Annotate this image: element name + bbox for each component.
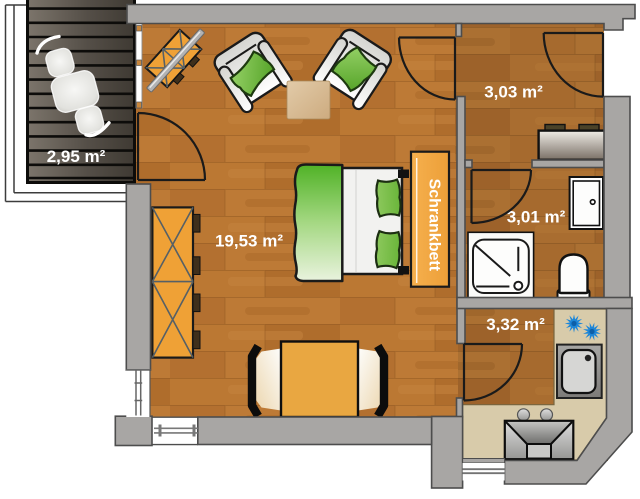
svg-text:2,95 m²: 2,95 m² [47, 147, 106, 166]
svg-text:3,03 m²: 3,03 m² [484, 83, 543, 102]
svg-text:19,53 m²: 19,53 m² [215, 232, 283, 251]
svg-text:3,32 m²: 3,32 m² [486, 315, 545, 334]
svg-text:Schrankbett: Schrankbett [425, 179, 442, 272]
svg-text:3,01 m²: 3,01 m² [507, 208, 566, 227]
